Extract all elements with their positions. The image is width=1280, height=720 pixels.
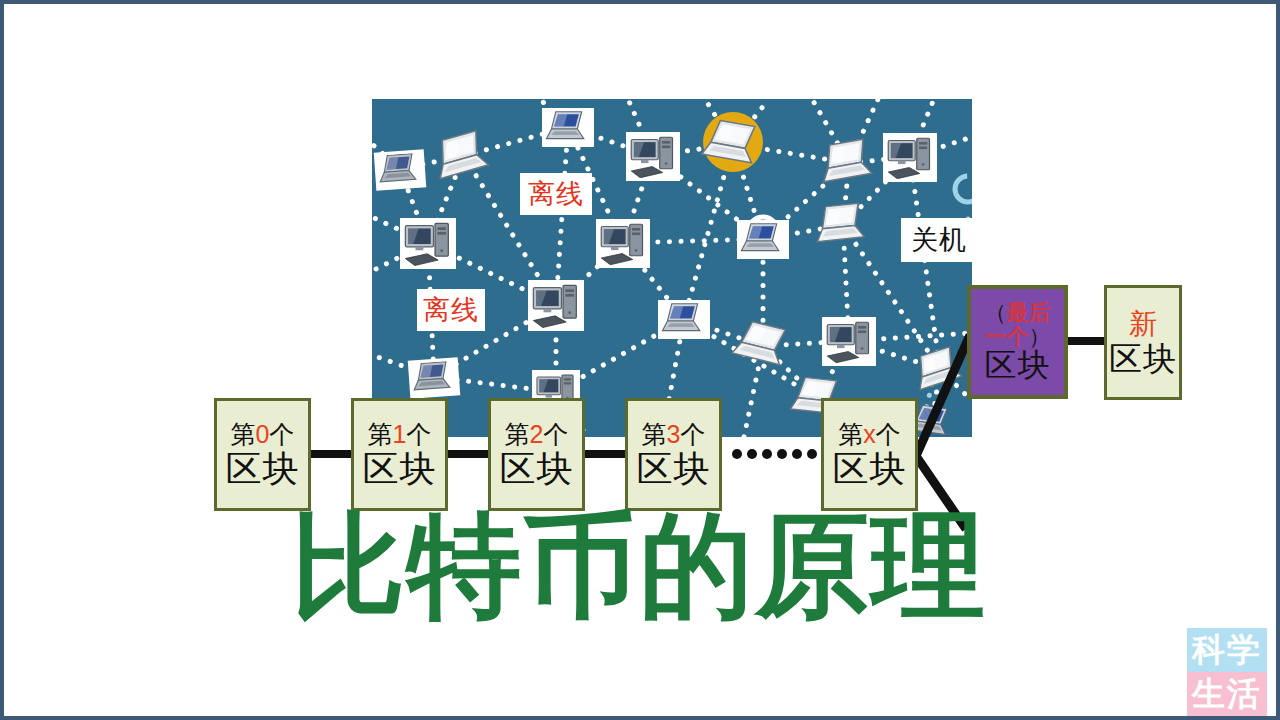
computer-node bbox=[658, 300, 710, 339]
block-index: 第x个 bbox=[838, 421, 901, 447]
desktop-icon bbox=[403, 221, 453, 266]
computer-node bbox=[408, 357, 461, 398]
last-block: （最后 一个） 区块 bbox=[967, 285, 1068, 399]
last-block-note: （最后 bbox=[985, 301, 1051, 325]
computer-node bbox=[908, 342, 971, 396]
laptop-icon bbox=[428, 126, 500, 186]
computer-node bbox=[816, 137, 883, 190]
new-block: 新 区块 bbox=[1104, 285, 1182, 400]
new-block-highlight: 新 bbox=[1129, 308, 1157, 340]
watermark-row-science: 科学 bbox=[1187, 628, 1267, 672]
block-label: 区块 bbox=[637, 450, 711, 488]
computer-node bbox=[542, 108, 594, 147]
block-index: 第0个 bbox=[231, 421, 295, 447]
desktop-icon bbox=[629, 135, 677, 179]
last-block-note: 一个） bbox=[985, 325, 1051, 349]
block-0: 第0个 区块 bbox=[214, 398, 311, 511]
laptop-icon bbox=[545, 111, 591, 144]
computer-node bbox=[812, 201, 874, 249]
computer-node bbox=[737, 220, 789, 259]
computer-node bbox=[822, 317, 876, 367]
block-1: 第1个 区块 bbox=[351, 398, 448, 511]
computer-node bbox=[400, 218, 456, 269]
watermark-row-life: 生活 bbox=[1187, 672, 1267, 716]
laptop-icon bbox=[729, 318, 798, 374]
laptop-icon bbox=[411, 361, 457, 396]
block-label: 区块 bbox=[1109, 342, 1177, 377]
computer-node bbox=[883, 133, 937, 183]
desktop-icon bbox=[886, 136, 934, 180]
net-label-offline-2: 离线 bbox=[417, 289, 485, 331]
block-2: 第2个 区块 bbox=[488, 398, 585, 511]
computer-node bbox=[528, 280, 584, 331]
laptop-icon bbox=[661, 303, 707, 336]
laptop-icon bbox=[816, 137, 883, 190]
desktop-icon bbox=[825, 320, 873, 364]
block-label: 区块 bbox=[226, 450, 300, 488]
laptop-icon bbox=[740, 223, 786, 256]
block-index: 第3个 bbox=[642, 421, 706, 447]
block-x: 第x个 区块 bbox=[821, 398, 918, 511]
page-title: 比特币的原理 bbox=[274, 502, 1004, 630]
computer-node bbox=[596, 219, 650, 269]
desktop-icon bbox=[599, 222, 647, 266]
computer-node bbox=[428, 126, 500, 186]
laptop-icon bbox=[812, 201, 874, 249]
slide-canvas: 离线离线关机 第0个 区块 第1个 区块 第2个 区块 第3个 区块 第x个 区… bbox=[0, 0, 1280, 720]
block-label: 区块 bbox=[500, 450, 574, 488]
desktop-icon bbox=[531, 283, 581, 328]
block-label: 区块 bbox=[985, 349, 1051, 383]
net-label-offline-1: 离线 bbox=[520, 173, 592, 215]
computer-node bbox=[374, 149, 427, 190]
watermark: 科学 生活 bbox=[1187, 628, 1267, 716]
computer-node bbox=[626, 132, 680, 182]
block-label: 区块 bbox=[363, 450, 437, 488]
block-index: 第1个 bbox=[368, 421, 432, 447]
block-index: 第2个 bbox=[505, 421, 569, 447]
block-label: 区块 bbox=[833, 450, 907, 488]
block-3: 第3个 区块 bbox=[625, 398, 722, 511]
net-label-shutdown: 关机 bbox=[901, 218, 977, 262]
laptop-icon bbox=[377, 153, 423, 188]
computer-node bbox=[729, 318, 798, 374]
laptop-icon bbox=[908, 342, 971, 396]
